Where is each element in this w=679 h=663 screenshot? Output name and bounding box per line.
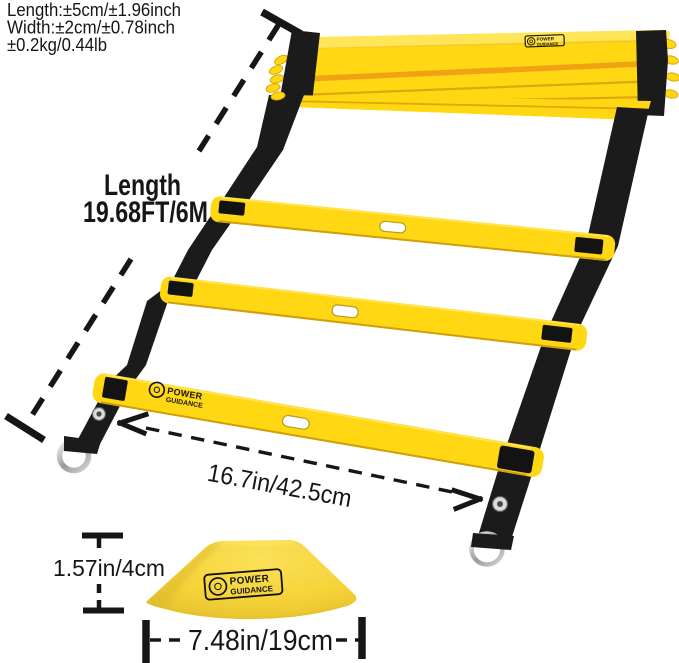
- svg-text:7.48in/19cm: 7.48in/19cm: [188, 625, 333, 657]
- svg-text:GUIDANCE: GUIDANCE: [537, 41, 559, 47]
- svg-text:±0.2kg/0.44lb: ±0.2kg/0.44lb: [7, 34, 107, 55]
- svg-text:19.68FT/6M: 19.68FT/6M: [83, 196, 208, 229]
- svg-text:1.57in/4cm: 1.57in/4cm: [53, 555, 165, 581]
